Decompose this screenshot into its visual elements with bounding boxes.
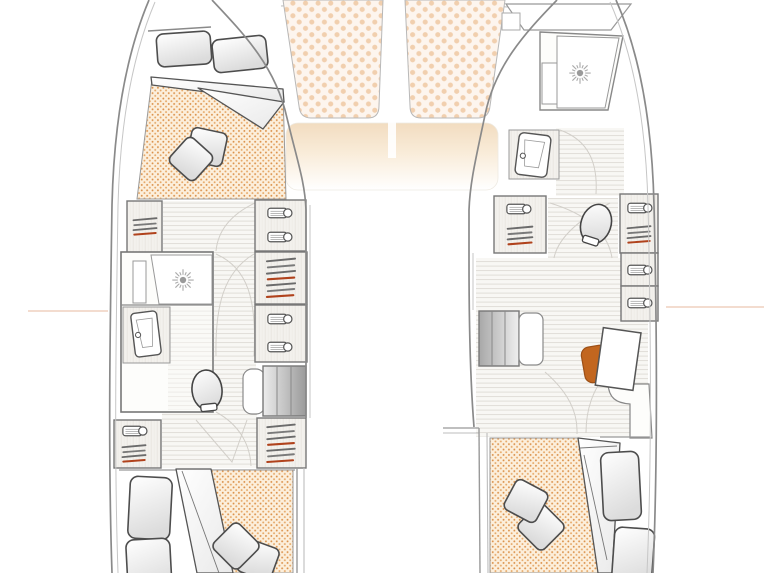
- forward-cabin: Forward double cabin: [137, 27, 286, 199]
- bed-pillow: [127, 476, 172, 540]
- drawer-unit-forward: Drawer unit: [255, 200, 306, 251]
- companionway-steps: Companionway steps: [243, 366, 306, 416]
- port-bow-sunpad: Port bow sun pad: [283, 0, 383, 118]
- drawer-icon: [507, 204, 531, 214]
- drawer-icon: [123, 426, 147, 436]
- floorplan-canvas: Catamaran interior deck plan: [0, 0, 764, 573]
- floor-planks: [556, 128, 624, 196]
- steps-landing: [243, 369, 265, 414]
- bathroom: Shower room Washbasin Marine toilet: [121, 252, 224, 412]
- floor-planks: [162, 412, 257, 468]
- hanging-locker-aft: Hanging locker: [257, 418, 306, 468]
- drawer-icon: [268, 314, 292, 324]
- starboard-bow-sunpad: Starboard bow sun pad: [405, 0, 505, 118]
- cabinet-box: [255, 305, 307, 362]
- headboard-wall: [148, 27, 211, 31]
- bed-pillow: [126, 538, 173, 573]
- wardrobe-inboard: Hanging wardrobe: [494, 196, 546, 253]
- drawer-icon: [268, 208, 292, 218]
- drawer-icon: [628, 298, 652, 308]
- drawer-unit-mid: Drawer unit: [255, 305, 307, 362]
- wardrobe-forward: Hanging wardrobe: [127, 201, 162, 256]
- steps-treads: [263, 366, 306, 416]
- aft-cabin: Aft double cabin: [119, 469, 295, 573]
- washbasin: Washbasin: [130, 311, 161, 358]
- shower-bench: [133, 261, 146, 303]
- drawer-unit-2: Drawer unit: [621, 286, 658, 321]
- shower-head-icon: [173, 270, 194, 291]
- desk: Desk: [595, 328, 641, 391]
- bow-locker: Bow locker: [502, 4, 631, 30]
- shower-bench: [542, 63, 557, 104]
- deck-plan-svg: Catamaran interior deck plan: [0, 0, 764, 573]
- wardrobe-aft: Aft wardrobe: [114, 420, 161, 468]
- drawer-icon: [628, 265, 652, 275]
- companionway-steps: Companionway steps: [479, 311, 543, 366]
- steps-treads: [479, 311, 519, 366]
- shower-head-icon: [570, 63, 591, 84]
- bed-pillow: [156, 31, 212, 68]
- wardrobe-outboard: Hanging wardrobe: [620, 194, 658, 253]
- bed-pillow: [211, 35, 268, 73]
- port-hull: Port hull Forward double cabin Ha: [110, 0, 310, 573]
- bow-locker-step: [502, 13, 520, 30]
- drawer-unit-1: Drawer unit: [621, 253, 658, 286]
- drawer-icon: [268, 232, 292, 242]
- hanging-locker-mid: Hanging locker: [255, 252, 307, 304]
- bed-pillow: [600, 451, 642, 521]
- aft-cabin-wall-2: [487, 433, 488, 573]
- steps-landing: [519, 313, 543, 365]
- foredeck: Foredeck Port bow sun pad Starboard bow …: [281, 0, 508, 190]
- drawer-icon: [268, 342, 292, 352]
- coachroof-seam: [388, 122, 396, 158]
- aft-cabin-wall: [479, 428, 480, 573]
- aft-cabin: Aft double cabin: [490, 437, 655, 573]
- washbasin: Washbasin: [515, 132, 552, 178]
